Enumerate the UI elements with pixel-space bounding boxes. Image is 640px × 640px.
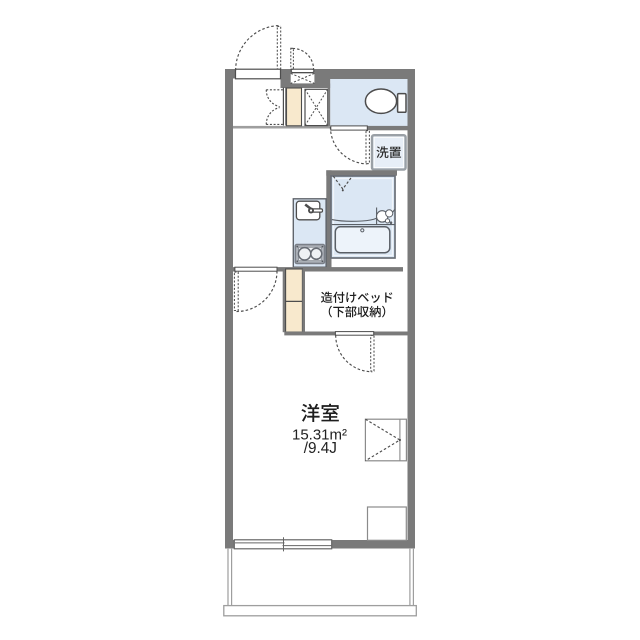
svg-text:/9.4J: /9.4J bbox=[304, 440, 337, 457]
